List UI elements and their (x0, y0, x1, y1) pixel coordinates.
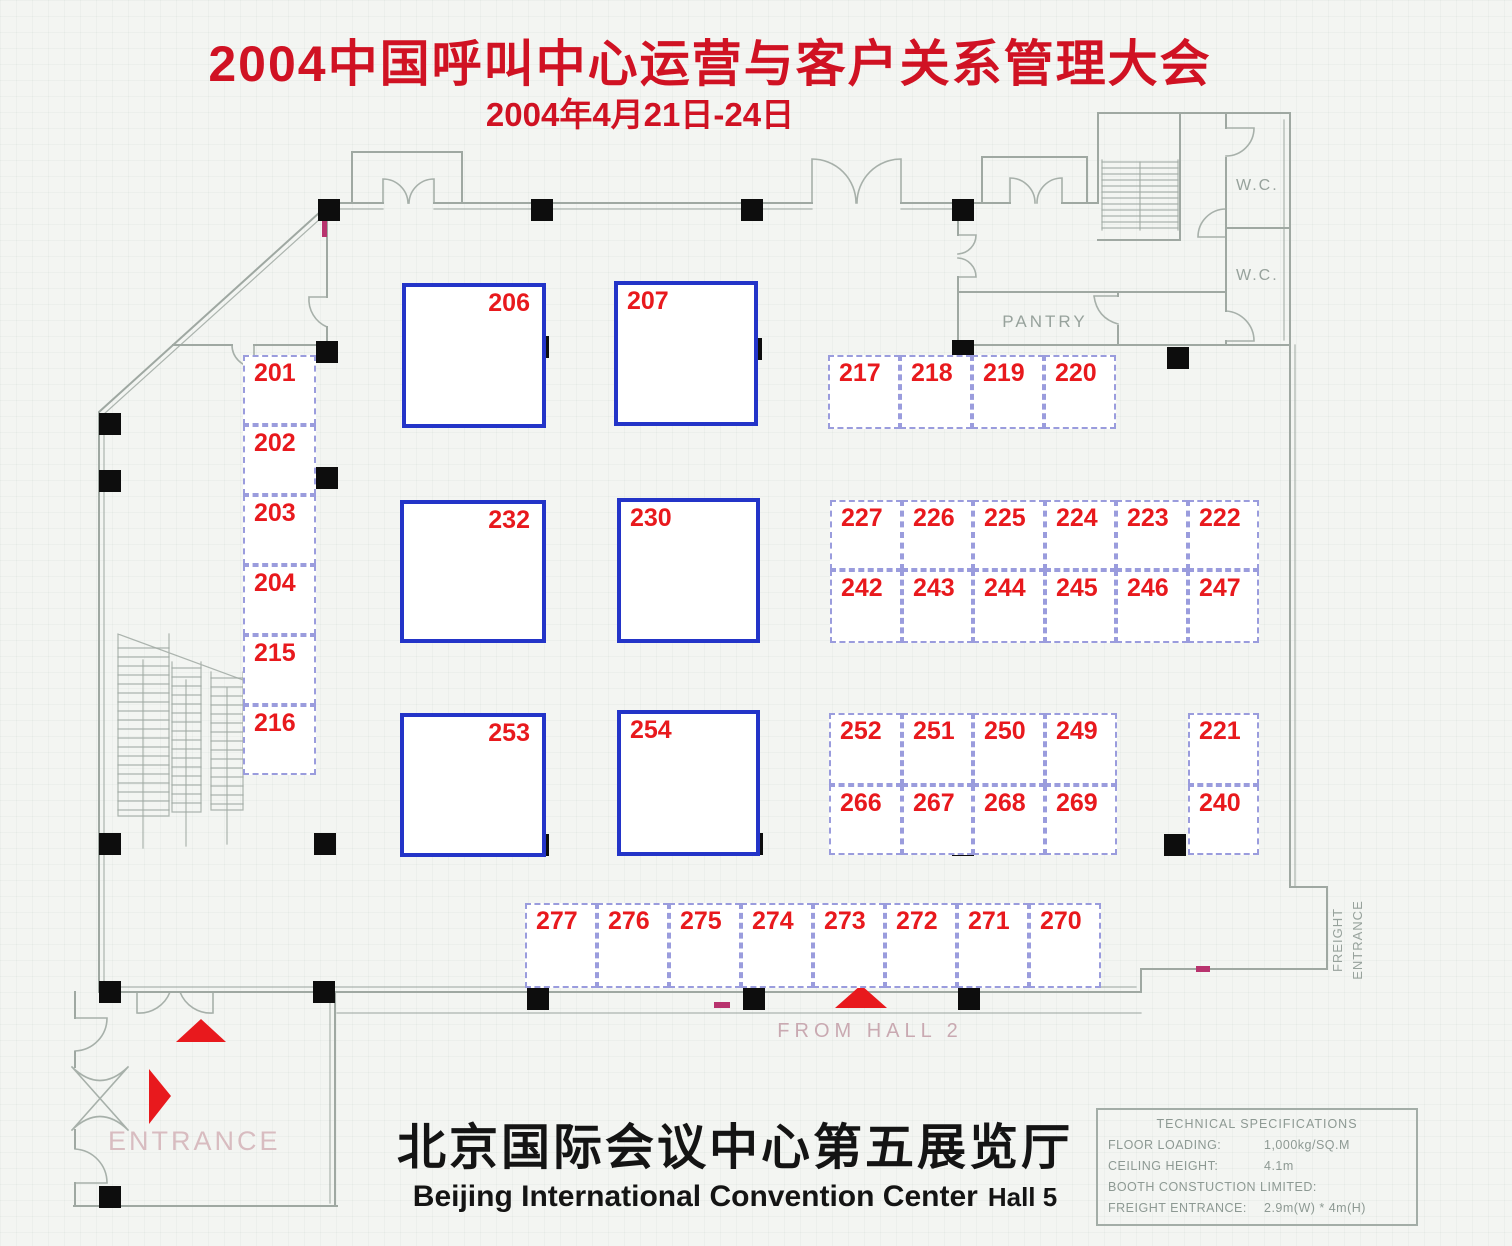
venue-title-en: Beijing International Convention CenterH… (370, 1180, 1100, 1214)
booth-206: 206 (402, 283, 546, 428)
booth-220: 220 (1044, 355, 1116, 429)
booth-275: 275 (669, 903, 741, 988)
booth-number: 224 (1056, 505, 1098, 533)
booth-number: 242 (841, 575, 883, 603)
booth-number: 253 (488, 720, 530, 748)
booth-270: 270 (1029, 903, 1101, 988)
event-date: 2004年4月21日-24日 (90, 88, 1190, 136)
booth-number: 266 (840, 790, 882, 818)
booth-254: 254 (617, 710, 760, 856)
spec-row-booth-construction: BOOTH CONSTUCTION LIMITED: (1098, 1177, 1416, 1198)
booth-number: 243 (913, 575, 955, 603)
venue-name-en: Beijing International Convention Center (413, 1180, 978, 1213)
booth-number: 271 (968, 908, 1010, 936)
booth-number: 247 (1199, 575, 1241, 603)
booth-number: 252 (840, 718, 882, 746)
booth-number: 254 (630, 717, 672, 745)
booth-223: 223 (1116, 500, 1188, 570)
booth-251: 251 (902, 713, 973, 785)
booth-number: 230 (630, 505, 672, 533)
spec-row-floor-loading: FLOOR LOADING:1,000kg/SQ.M (1098, 1135, 1416, 1156)
booth-number: 206 (488, 290, 530, 318)
booth-244: 244 (973, 570, 1045, 643)
booth-268: 268 (973, 785, 1045, 855)
booth-232: 232 (400, 500, 546, 643)
booth-207: 207 (614, 281, 758, 426)
booth-number: 270 (1040, 908, 1082, 936)
booth-number: 275 (680, 908, 722, 936)
floor-plan-canvas: 2012022032042152162062072322302532542172… (0, 0, 1512, 1246)
hall-number: Hall 5 (988, 1182, 1057, 1212)
booth-267: 267 (902, 785, 973, 855)
revolving-door-icon (72, 1067, 128, 1130)
pantry-label: PANTRY (980, 312, 1110, 332)
booth-number: 249 (1056, 718, 1098, 746)
booth-253: 253 (400, 713, 546, 857)
wc-room-label: W.C. (1236, 267, 1296, 285)
booth-number: 217 (839, 360, 881, 388)
booth-number: 203 (254, 500, 296, 528)
booth-243: 243 (902, 570, 973, 643)
booth-224: 224 (1045, 500, 1116, 570)
booth-number: 201 (254, 360, 296, 388)
booth-number: 267 (913, 790, 955, 818)
booth-number: 273 (824, 908, 866, 936)
booth-222: 222 (1188, 500, 1259, 570)
entrance-label: ENTRANCE (108, 1126, 308, 1157)
spec-row-freight-entrance: FREIGHT ENTRANCE:2.9m(W) * 4m(H) (1098, 1198, 1416, 1219)
booth-203: 203 (243, 495, 316, 565)
booth-number: 276 (608, 908, 650, 936)
booth-230: 230 (617, 498, 760, 643)
booth-216: 216 (243, 705, 316, 775)
booth-249: 249 (1045, 713, 1117, 785)
booth-250: 250 (973, 713, 1045, 785)
spec-title: TECHNICAL SPECIFICATIONS (1098, 1117, 1416, 1131)
booth-215: 215 (243, 635, 316, 705)
booth-number: 250 (984, 718, 1026, 746)
booth-269: 269 (1045, 785, 1117, 855)
booth-number: 221 (1199, 718, 1241, 746)
booth-274: 274 (741, 903, 813, 988)
booth-number: 202 (254, 430, 296, 458)
booth-242: 242 (830, 570, 902, 643)
venue-title-cn: 北京国际会议中心第五展览厅 (370, 1108, 1100, 1179)
booth-number: 244 (984, 575, 1026, 603)
booth-number: 268 (984, 790, 1026, 818)
booth-number: 226 (913, 505, 955, 533)
booth-number: 240 (1199, 790, 1241, 818)
booth-202: 202 (243, 425, 316, 495)
freight-entrance-label: FREIGHT ENTRANCE (1328, 875, 1372, 1005)
booth-number: 246 (1127, 575, 1169, 603)
booth-number: 251 (913, 718, 955, 746)
booth-number: 274 (752, 908, 794, 936)
direction-arrows (149, 985, 887, 1124)
stairs-left-icon (118, 634, 243, 848)
booth-217: 217 (828, 355, 900, 429)
booth-271: 271 (957, 903, 1029, 988)
booth-201: 201 (243, 355, 316, 425)
booth-number: 277 (536, 908, 578, 936)
booth-245: 245 (1045, 570, 1116, 643)
booth-246: 246 (1116, 570, 1188, 643)
booth-204: 204 (243, 565, 316, 635)
booth-277: 277 (525, 903, 597, 988)
booth-247: 247 (1188, 570, 1259, 643)
event-title: 2004中国呼叫中心运营与客户关系管理大会 (90, 24, 1330, 96)
technical-specifications-box: TECHNICAL SPECIFICATIONS FLOOR LOADING:1… (1096, 1108, 1418, 1226)
booth-number: 269 (1056, 790, 1098, 818)
from-hall-2-label: FROM HALL 2 (760, 1020, 980, 1043)
booth-number: 222 (1199, 505, 1241, 533)
booth-number: 272 (896, 908, 938, 936)
entrance-up-arrow-icon (176, 1019, 226, 1042)
booth-240: 240 (1188, 785, 1259, 855)
spec-row-ceiling-height: CEILING HEIGHT:4.1m (1098, 1156, 1416, 1177)
booth-221: 221 (1188, 713, 1259, 785)
booth-225: 225 (973, 500, 1045, 570)
stairs-top-right-icon (1102, 160, 1178, 230)
booth-number: 219 (983, 360, 1025, 388)
booth-number: 216 (254, 710, 296, 738)
booth-number: 204 (254, 570, 296, 598)
booth-252: 252 (829, 713, 902, 785)
booth-273: 273 (813, 903, 885, 988)
booth-219: 219 (972, 355, 1044, 429)
booth-276: 276 (597, 903, 669, 988)
booth-number: 223 (1127, 505, 1169, 533)
booth-number: 225 (984, 505, 1026, 533)
booth-number: 218 (911, 360, 953, 388)
booth-227: 227 (830, 500, 902, 570)
booth-number: 245 (1056, 575, 1098, 603)
booth-number: 227 (841, 505, 883, 533)
entrance-right-arrow-icon (149, 1069, 171, 1124)
booth-266: 266 (829, 785, 902, 855)
booth-number: 220 (1055, 360, 1097, 388)
from-hall-arrow-icon (835, 985, 887, 1008)
booth-226: 226 (902, 500, 973, 570)
booth-number: 232 (488, 507, 530, 535)
booth-218: 218 (900, 355, 972, 429)
booth-272: 272 (885, 903, 957, 988)
wc-room-label: W.C. (1236, 177, 1296, 195)
booth-number: 207 (627, 288, 669, 316)
booth-number: 215 (254, 640, 296, 668)
